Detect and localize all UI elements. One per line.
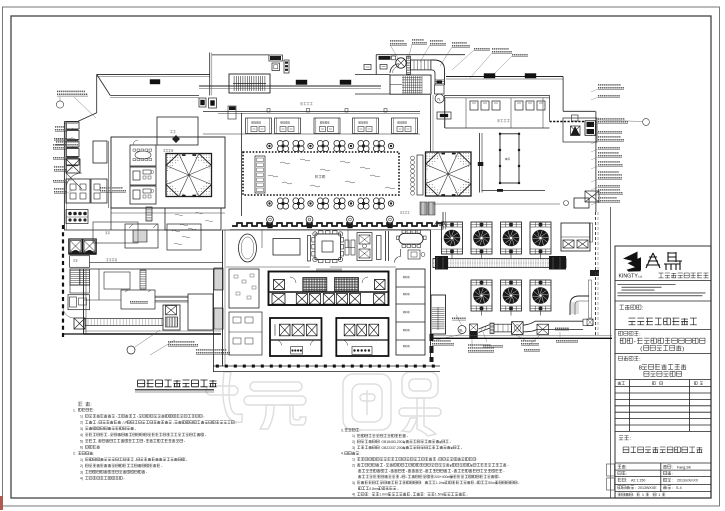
svg-text:2): 2) [80, 464, 83, 468]
svg-text:KINGTY: KINGTY [619, 274, 639, 280]
svg-text:3.: 3. [341, 428, 344, 432]
svg-text:2): 2) [352, 463, 355, 467]
svg-text:1): 1) [80, 415, 83, 419]
svg-text:S-4: S-4 [676, 486, 682, 490]
svg-text:GB18483-2001: GB18483-2001 [381, 440, 404, 444]
svg-text::: : [630, 436, 631, 442]
svg-text:UV: UV [124, 421, 129, 425]
svg-text:3): 3) [80, 470, 83, 474]
svg-text::: : [672, 485, 673, 490]
svg-text:1): 1) [352, 458, 355, 462]
svg-text::: : [93, 408, 94, 412]
svg-text::: : [672, 471, 673, 476]
svg-text:GB22337-2008: GB22337-2008 [381, 446, 404, 450]
svg-text:): ) [682, 347, 684, 353]
svg-text:50mm: 50mm [488, 481, 498, 485]
svg-text:Fang.SK: Fang.SK [677, 465, 692, 469]
svg-text::: : [421, 481, 422, 485]
svg-text:2.: 2. [73, 452, 76, 456]
svg-text:1): 1) [80, 458, 83, 462]
svg-text:1.0mm: 1.0mm [379, 493, 390, 497]
svg-text:4): 4) [80, 477, 83, 481]
svg-text::: : [672, 464, 673, 469]
svg-text::: : [639, 333, 640, 338]
svg-text::: : [424, 493, 425, 497]
svg-text::: : [360, 452, 361, 456]
svg-text:5): 5) [80, 439, 83, 443]
svg-text:3): 3) [80, 427, 83, 431]
svg-text:1.2mm: 1.2mm [436, 481, 447, 485]
svg-text:1): 1) [352, 434, 355, 438]
svg-text:1: 1 [642, 493, 644, 497]
svg-text::: : [93, 452, 94, 456]
svg-text:1.5mm: 1.5mm [435, 493, 446, 497]
svg-text::: : [639, 358, 640, 363]
svg-text:0.8mm: 0.8mm [369, 487, 380, 491]
svg-text::: : [635, 485, 636, 490]
svg-text:4.: 4. [341, 452, 344, 456]
svg-text:8L: 8L [459, 328, 463, 332]
svg-text::: : [626, 478, 627, 483]
svg-text::: : [626, 471, 627, 476]
svg-text:6): 6) [80, 446, 83, 450]
svg-text:3): 3) [352, 481, 355, 485]
svg-text::: : [360, 428, 361, 432]
svg-text:2): 2) [352, 440, 355, 444]
svg-text:Ltd.: Ltd. [638, 275, 643, 279]
svg-text::: : [633, 493, 634, 497]
svg-text:2013WXXE: 2013WXXE [638, 486, 657, 490]
svg-text::: : [90, 402, 91, 407]
svg-text::: : [368, 493, 369, 497]
svg-text:4): 4) [80, 433, 83, 437]
svg-text:-: - [476, 458, 477, 462]
svg-text::: : [626, 464, 627, 469]
svg-text:1.: 1. [73, 408, 76, 412]
svg-text:3): 3) [352, 446, 355, 450]
svg-text::: : [672, 478, 673, 483]
svg-text:(: ( [640, 347, 642, 353]
svg-text::: : [642, 306, 643, 312]
svg-text:,: , [96, 439, 97, 443]
svg-text:4): 4) [352, 493, 355, 497]
svg-text:7L: 7L [437, 97, 441, 101]
svg-text:-: - [634, 339, 636, 346]
svg-text:2): 2) [80, 421, 83, 425]
svg-text:200+400mm: 200+400mm [434, 475, 453, 479]
svg-text:2013mXmXX: 2013mXmXX [677, 479, 699, 483]
svg-text:1: 1 [658, 493, 660, 497]
svg-text:A2 1:150: A2 1:150 [631, 479, 645, 483]
